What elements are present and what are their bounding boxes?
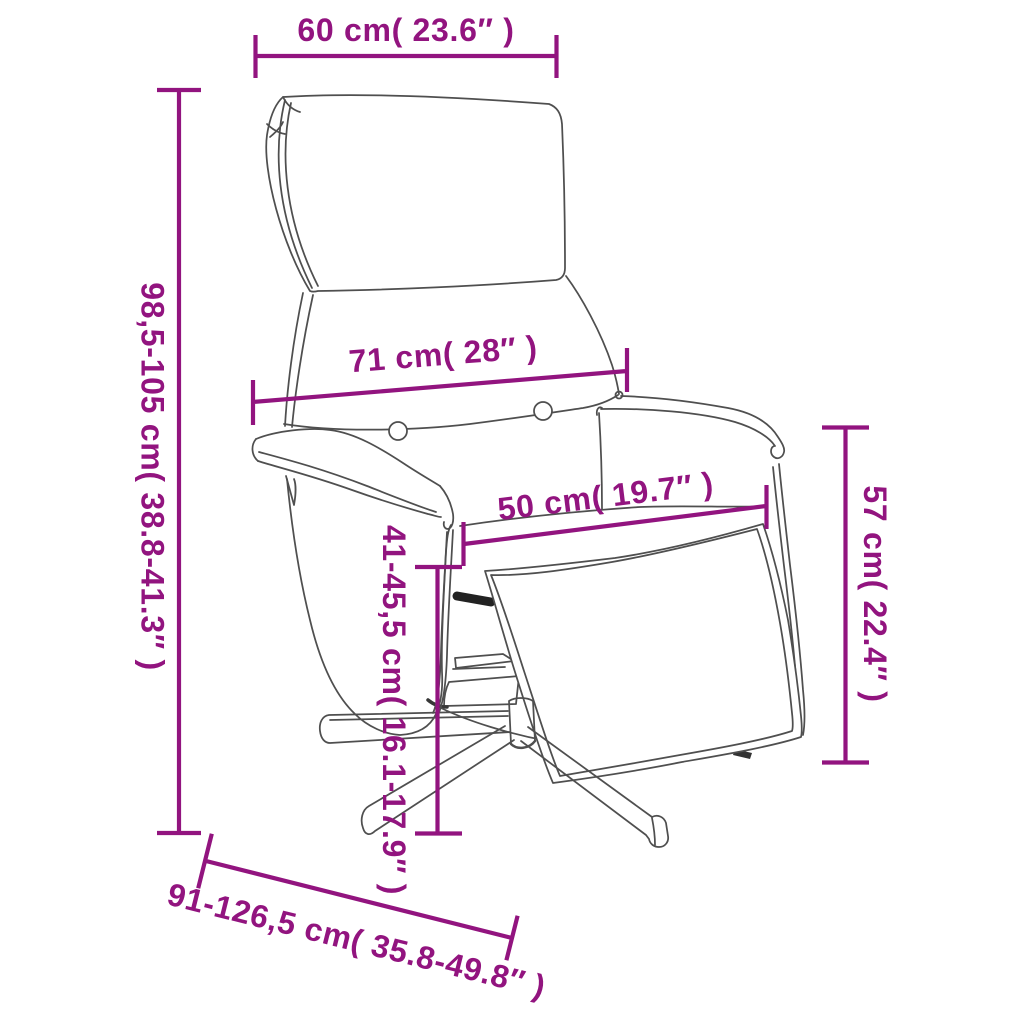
svg-text:98,5-105 cm( 38.8-41.3″ ): 98,5-105 cm( 38.8-41.3″ ) xyxy=(135,282,171,671)
svg-text:57 cm( 22.4″ ): 57 cm( 22.4″ ) xyxy=(857,485,893,702)
svg-text:91-126,5 cm( 35.8-49.8″ ): 91-126,5 cm( 35.8-49.8″ ) xyxy=(164,876,550,1005)
svg-text:41-45,5 cm( 16.1-17.9″ ): 41-45,5 cm( 16.1-17.9″ ) xyxy=(376,525,412,895)
svg-text:71 cm( 28″ ): 71 cm( 28″ ) xyxy=(347,329,538,380)
svg-text:60 cm( 23.6″ ): 60 cm( 23.6″ ) xyxy=(297,12,514,48)
